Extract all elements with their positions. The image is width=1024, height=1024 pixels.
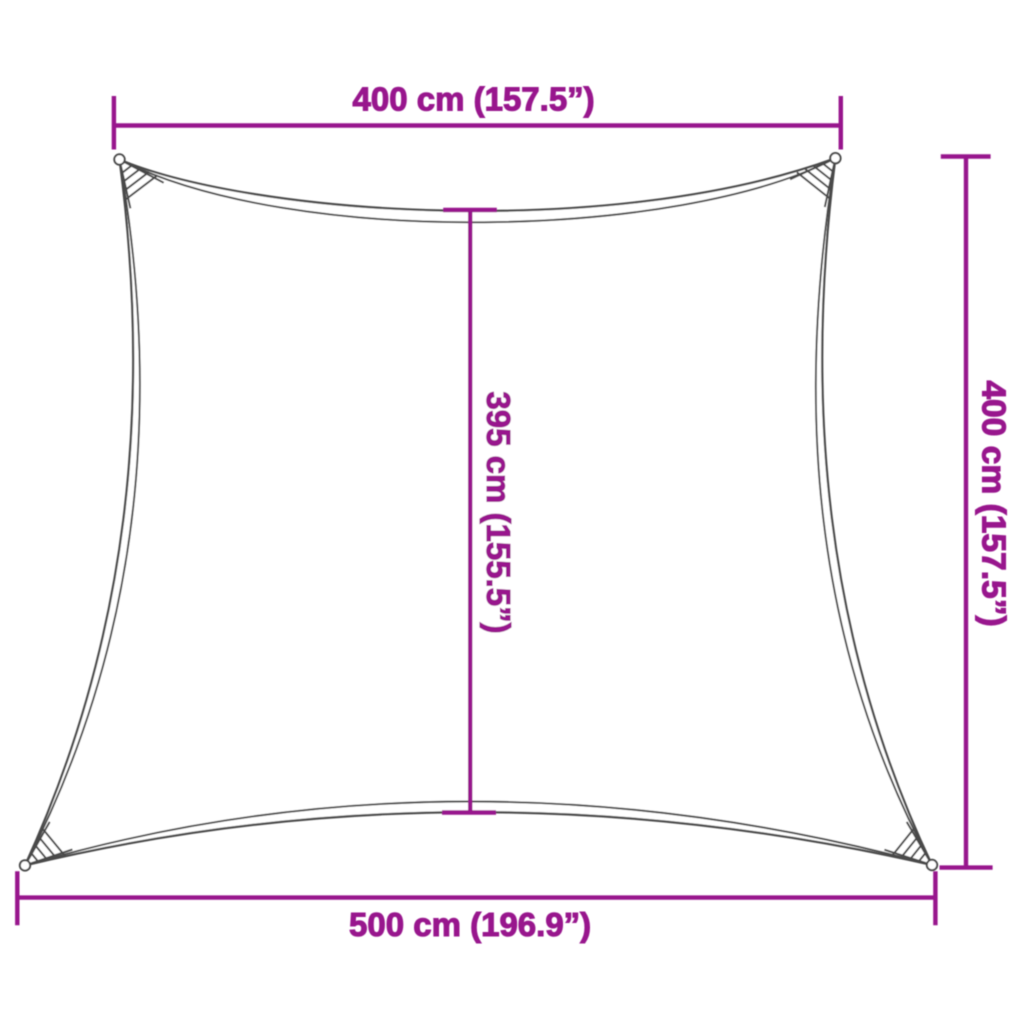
svg-text:400 cm (157.5”): 400 cm (157.5”) (353, 81, 595, 118)
svg-text:500 cm (196.9”): 500 cm (196.9”) (349, 906, 591, 943)
svg-text:395 cm (155.5”): 395 cm (155.5”) (480, 391, 517, 633)
svg-text:400 cm (157.5”): 400 cm (157.5”) (975, 380, 1012, 626)
